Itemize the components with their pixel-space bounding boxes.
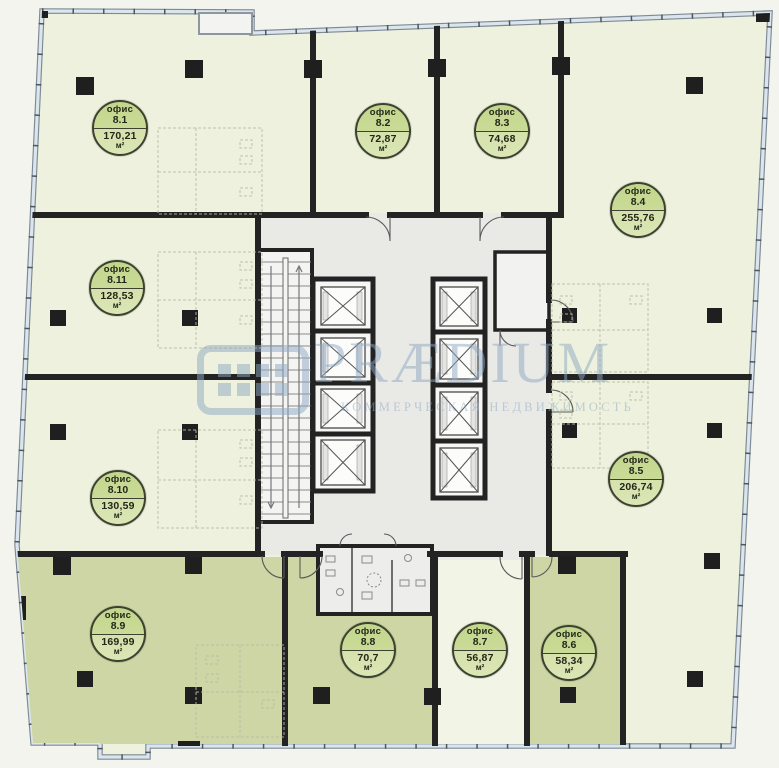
restroom-block: [318, 546, 432, 614]
area-unit: м²: [357, 145, 409, 153]
office-number: 8.8: [342, 637, 394, 648]
area-unit: м²: [92, 512, 144, 520]
office-area: 255,76: [612, 213, 664, 224]
office-word: офис: [454, 627, 506, 637]
office-area: 74,68: [476, 134, 528, 145]
area-unit: м²: [91, 302, 143, 310]
office-area: 70,7: [342, 653, 394, 664]
office-number: 8.4: [612, 197, 664, 208]
office-area: 56,87: [454, 653, 506, 664]
office-word: офис: [612, 187, 664, 197]
room-office-8-10[interactable]: [16, 380, 255, 551]
office-number: 8.3: [476, 118, 528, 129]
office-area: 128,53: [91, 291, 143, 302]
building-core: [258, 213, 549, 560]
facade-notch: [199, 13, 252, 34]
area-unit: м²: [543, 667, 595, 675]
room-office-8-4[interactable]: [564, 12, 772, 374]
area-unit: м²: [454, 664, 506, 672]
office-area: 58,34: [543, 656, 595, 667]
office-word: офис: [91, 265, 143, 275]
office-word: офис: [342, 627, 394, 637]
office-number: 8.5: [610, 466, 662, 477]
area-unit: м²: [476, 145, 528, 153]
office-badge-8-7[interactable]: офис8.7 56,87м²: [452, 622, 508, 678]
office-word: офис: [543, 630, 595, 640]
office-number: 8.7: [454, 637, 506, 648]
area-unit: м²: [94, 142, 146, 150]
office-number: 8.9: [92, 621, 144, 632]
office-badge-8-6[interactable]: офис8.6 58,34м²: [541, 625, 597, 681]
office-number: 8.10: [92, 485, 144, 496]
office-badge-8-4[interactable]: офис8.4 255,76м²: [610, 182, 666, 238]
office-word: офис: [94, 105, 146, 115]
service-room: [495, 252, 549, 330]
office-number: 8.6: [543, 640, 595, 651]
office-area: 169,99: [92, 637, 144, 648]
floor-plan-page: PRÆDIUM КОММЕРЧЕСКАЯ НЕДВИЖИМОСТЬ офис8.…: [0, 0, 779, 768]
office-area: 72,87: [357, 134, 409, 145]
office-number: 8.2: [357, 118, 409, 129]
room-office-8-9[interactable]: [15, 557, 282, 744]
elevator-bank-right: [433, 279, 485, 498]
office-word: офис: [357, 108, 409, 118]
office-area: 206,74: [610, 482, 662, 493]
elevator-bank-left: [313, 279, 373, 491]
office-badge-8-2[interactable]: офис8.2 72,87м²: [355, 103, 411, 159]
office-number: 8.1: [94, 115, 146, 126]
stairwell: [259, 250, 312, 522]
office-badge-8-5[interactable]: офис8.5 206,74м²: [608, 451, 664, 507]
office-area: 170,21: [94, 131, 146, 142]
office-word: офис: [476, 108, 528, 118]
office-badge-8-8[interactable]: офис8.8 70,7м²: [340, 622, 396, 678]
office-word: офис: [610, 456, 662, 466]
office-badge-8-1[interactable]: офис8.1 170,21м²: [92, 100, 148, 156]
area-unit: м²: [92, 648, 144, 656]
office-badge-8-3[interactable]: офис8.3 74,68м²: [474, 103, 530, 159]
office-area: 130,59: [92, 501, 144, 512]
office-badge-8-9[interactable]: офис8.9 169,99м²: [90, 606, 146, 662]
office-word: офис: [92, 475, 144, 485]
room-office-8-1[interactable]: [34, 12, 310, 213]
area-unit: м²: [342, 664, 394, 672]
area-unit: м²: [610, 493, 662, 501]
office-number: 8.11: [91, 275, 143, 286]
office-badge-8-11[interactable]: офис8.11 128,53м²: [89, 260, 145, 316]
area-unit: м²: [612, 224, 664, 232]
office-word: офис: [92, 611, 144, 621]
office-badge-8-10[interactable]: офис8.10 130,59м²: [90, 470, 146, 526]
